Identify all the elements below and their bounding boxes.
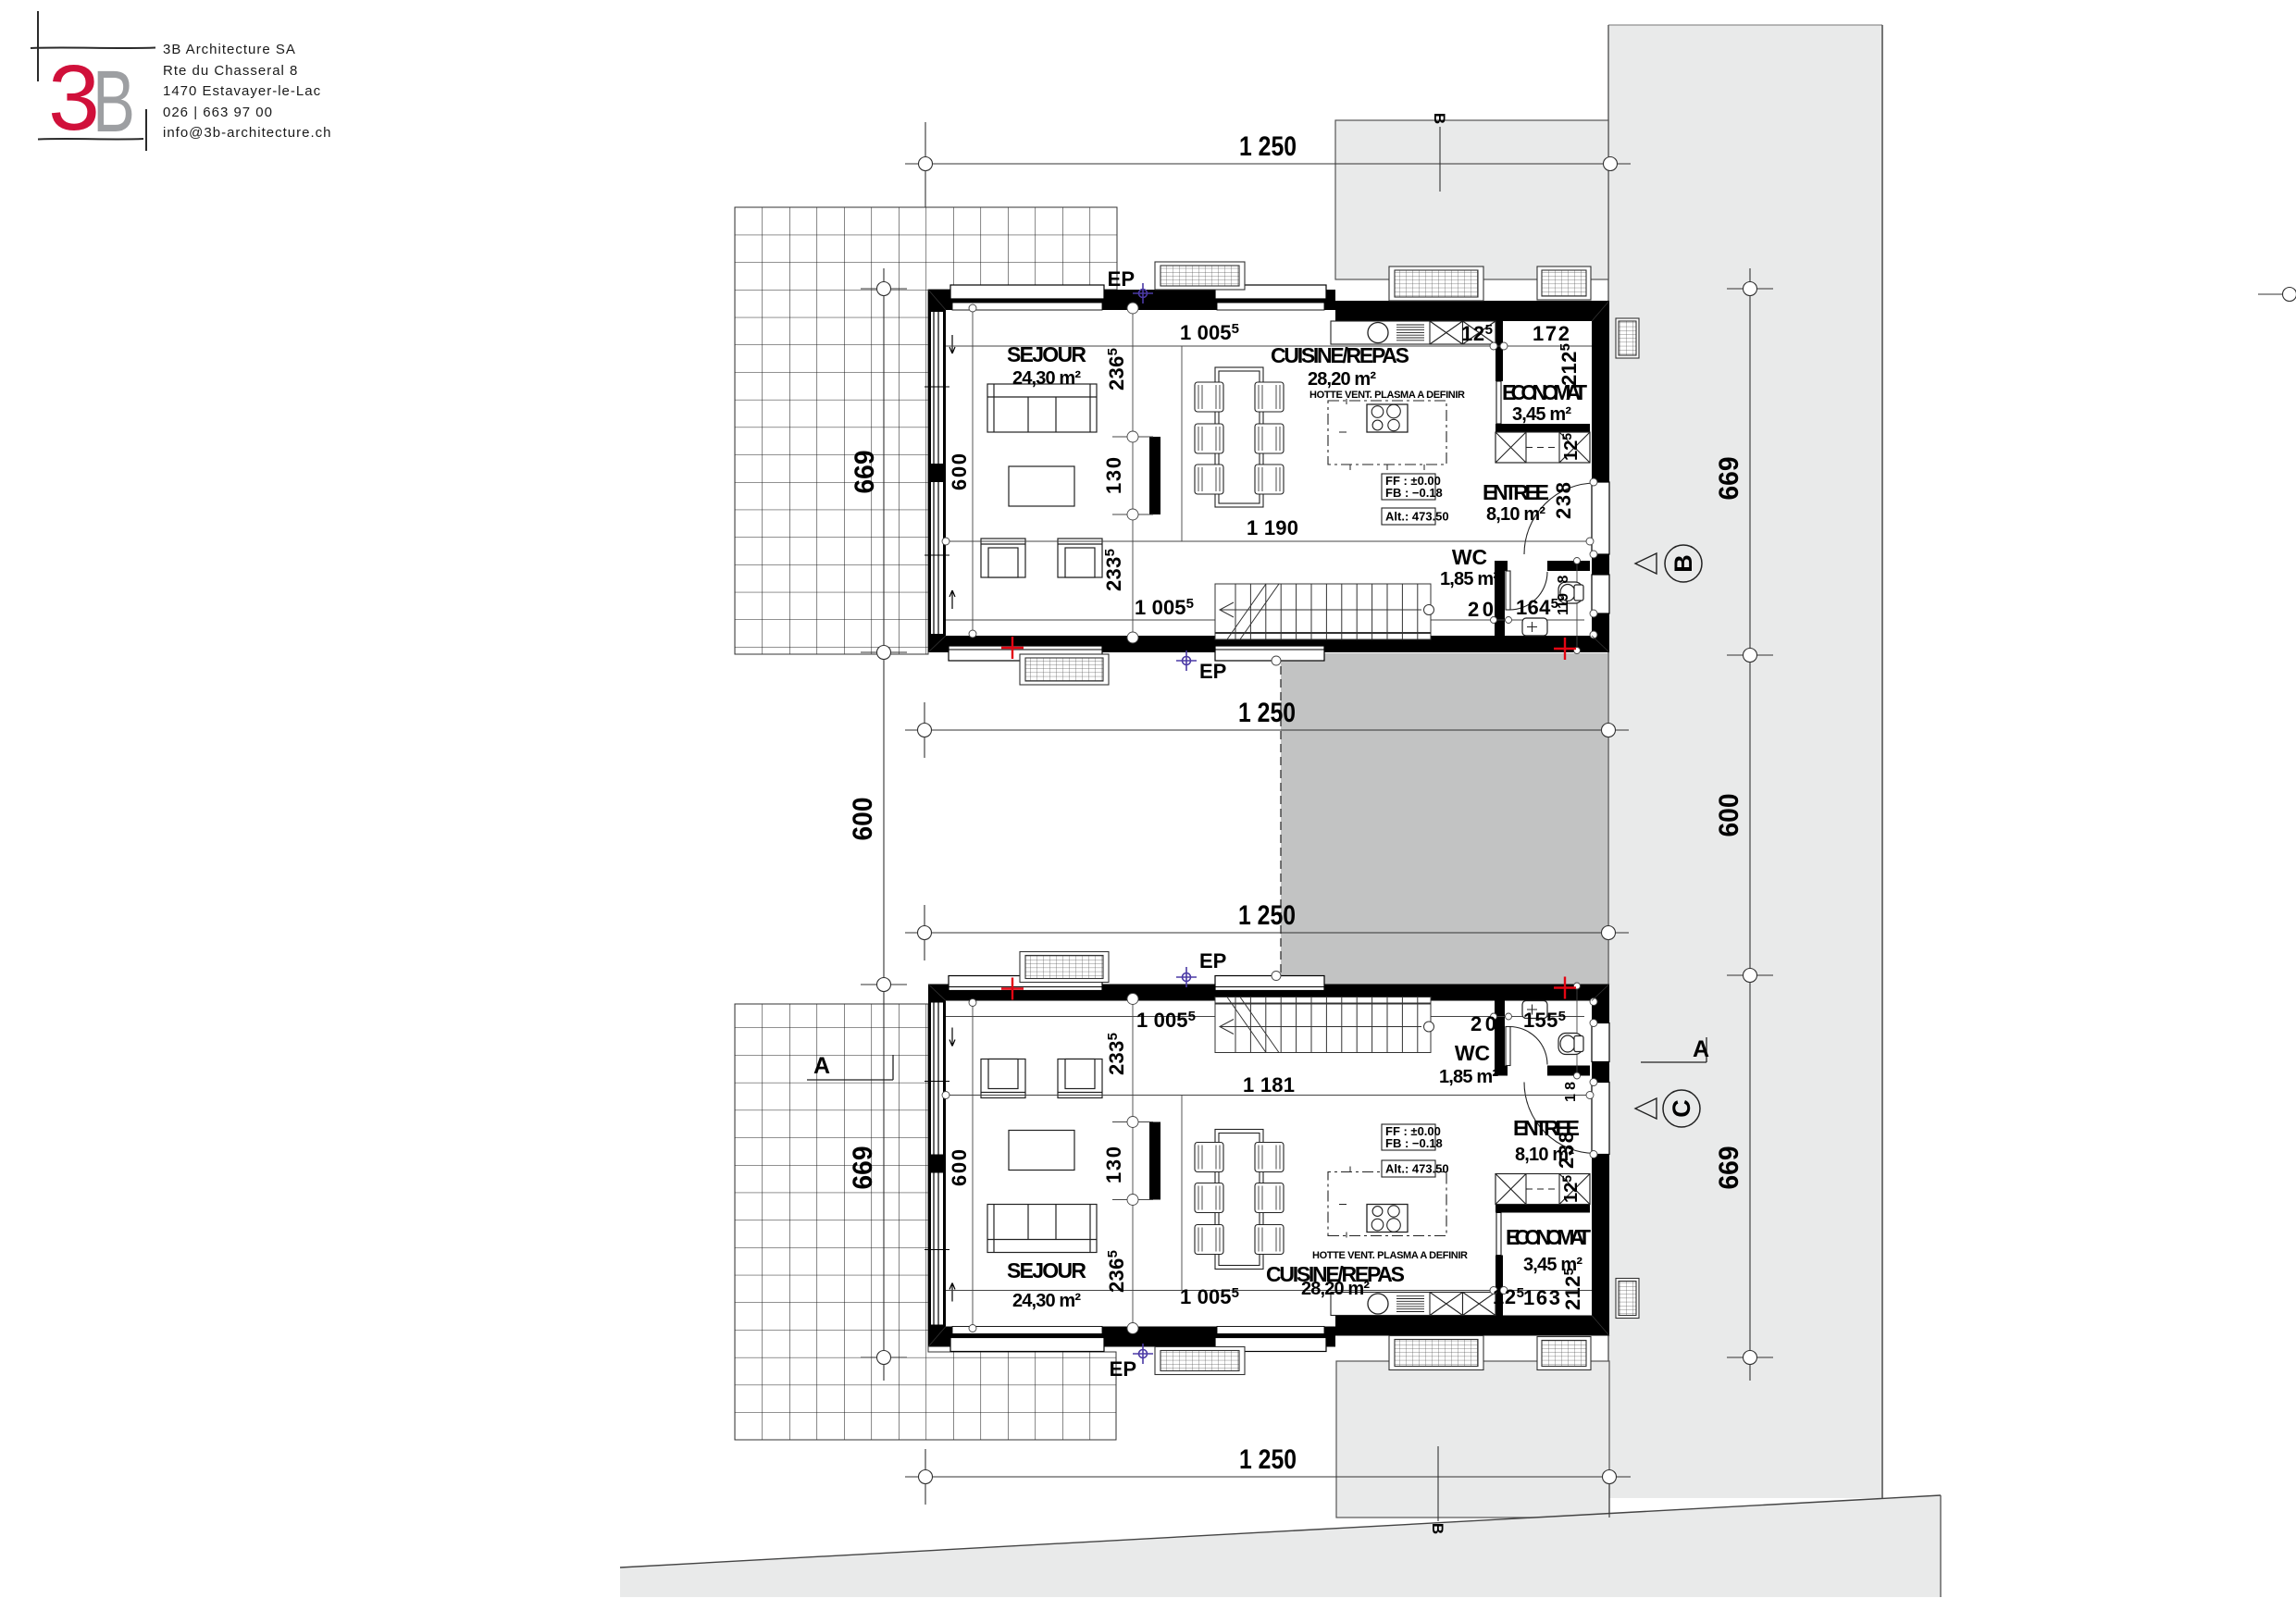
svg-text:EP: EP bbox=[1199, 949, 1226, 973]
svg-text:WC: WC bbox=[1455, 1041, 1490, 1065]
svg-text:1470 Estavayer-le-Lac: 1470 Estavayer-le-Lac bbox=[163, 83, 321, 99]
svg-text:EP: EP bbox=[1199, 660, 1226, 683]
svg-text:C: C bbox=[1668, 1099, 1695, 1118]
svg-text:1 0055: 1 0055 bbox=[1180, 321, 1239, 344]
svg-text:EP: EP bbox=[1108, 267, 1135, 291]
svg-text:Alt.: 473.50: Alt.: 473.50 bbox=[1385, 1162, 1449, 1176]
svg-text:238: 238 bbox=[1555, 1132, 1578, 1169]
svg-text:600: 600 bbox=[948, 453, 971, 490]
svg-text:669: 669 bbox=[848, 1146, 878, 1190]
svg-text:163: 163 bbox=[1523, 1286, 1560, 1309]
svg-text:130: 130 bbox=[1102, 457, 1125, 494]
svg-text:1 250: 1 250 bbox=[1238, 698, 1296, 728]
svg-text:172: 172 bbox=[1533, 322, 1570, 345]
svg-text:669: 669 bbox=[850, 451, 880, 494]
svg-text:1 250: 1 250 bbox=[1239, 131, 1297, 162]
svg-text:24,30 m²: 24,30 m² bbox=[1012, 1291, 1081, 1311]
svg-text:WC: WC bbox=[1452, 545, 1487, 569]
svg-text:1 0055: 1 0055 bbox=[1136, 1009, 1196, 1032]
svg-text:ENTREE: ENTREE bbox=[1483, 480, 1549, 504]
svg-text:24,30 m²: 24,30 m² bbox=[1012, 368, 1081, 389]
svg-text:1 181: 1 181 bbox=[1243, 1073, 1295, 1096]
svg-text:669: 669 bbox=[1714, 1146, 1744, 1190]
svg-text:info@3b-architecture.ch: info@3b-architecture.ch bbox=[163, 125, 331, 141]
svg-text:CUISINE/REPAS: CUISINE/REPAS bbox=[1271, 343, 1409, 367]
svg-text:FB : −0.18: FB : −0.18 bbox=[1385, 486, 1443, 500]
svg-text:669: 669 bbox=[1714, 457, 1744, 501]
svg-text:HOTTE VENT. PLASMA A DEFINIR: HOTTE VENT. PLASMA A DEFINIR bbox=[1312, 1250, 1468, 1261]
svg-text:B: B bbox=[1669, 554, 1697, 573]
svg-text:SEJOUR: SEJOUR bbox=[1007, 342, 1086, 366]
svg-text:A: A bbox=[813, 1053, 830, 1079]
svg-text:1 0055: 1 0055 bbox=[1180, 1285, 1239, 1308]
svg-text:3: 3 bbox=[48, 46, 100, 150]
svg-text:1 250: 1 250 bbox=[1238, 900, 1296, 931]
svg-text:238: 238 bbox=[1552, 482, 1575, 519]
svg-text:EP: EP bbox=[1110, 1357, 1136, 1381]
svg-text:600: 600 bbox=[948, 1149, 971, 1186]
svg-text:1 0055: 1 0055 bbox=[1135, 596, 1194, 619]
svg-text:1,85 m²: 1,85 m² bbox=[1440, 569, 1499, 589]
svg-text:HOTTE VENT. PLASMA A DEFINIR: HOTTE VENT. PLASMA A DEFINIR bbox=[1309, 390, 1465, 401]
svg-text:3B Architecture SA: 3B Architecture SA bbox=[163, 42, 296, 57]
svg-text:28,20 m²: 28,20 m² bbox=[1308, 369, 1376, 390]
svg-text:ECONOMAT: ECONOMAT bbox=[1506, 1225, 1591, 1249]
svg-text:8: 8 bbox=[1556, 575, 1571, 583]
svg-text:600: 600 bbox=[848, 798, 878, 841]
svg-text:026 | 663 97 00: 026 | 663 97 00 bbox=[163, 105, 273, 120]
svg-text:B: B bbox=[1431, 113, 1448, 124]
svg-text:FB : −0.18: FB : −0.18 bbox=[1385, 1136, 1443, 1150]
svg-text:Rte du Chasseral 8: Rte du Chasseral 8 bbox=[163, 63, 298, 79]
svg-text:600: 600 bbox=[1714, 794, 1744, 837]
svg-text:B: B bbox=[1429, 1523, 1446, 1534]
svg-text:8,10 m²: 8,10 m² bbox=[1486, 504, 1545, 525]
svg-text:1 190: 1 190 bbox=[1247, 516, 1298, 539]
svg-text:130: 130 bbox=[1102, 1146, 1125, 1183]
svg-text:Alt.: 473.50: Alt.: 473.50 bbox=[1385, 510, 1449, 524]
svg-text:119: 119 bbox=[1556, 593, 1571, 615]
svg-text:3,45 m²: 3,45 m² bbox=[1512, 404, 1571, 425]
svg-text:28,20 m²: 28,20 m² bbox=[1301, 1279, 1370, 1299]
svg-text:SEJOUR: SEJOUR bbox=[1007, 1258, 1086, 1282]
svg-text:1,85 m²: 1,85 m² bbox=[1439, 1067, 1498, 1087]
svg-text:1 250: 1 250 bbox=[1239, 1444, 1297, 1475]
svg-text:A: A bbox=[1693, 1036, 1709, 1062]
